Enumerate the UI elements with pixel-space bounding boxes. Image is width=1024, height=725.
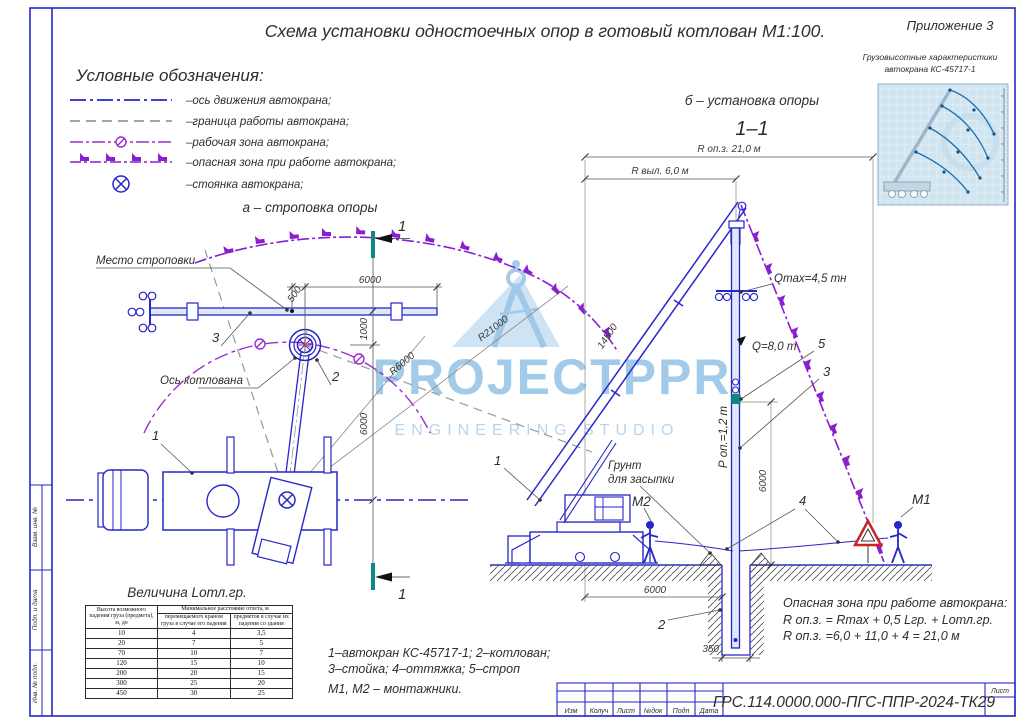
plan-callout-3: 3 <box>212 330 220 345</box>
cell: 25 <box>230 688 292 698</box>
no-entry-icon <box>255 339 265 349</box>
danger-flag-icon <box>158 153 167 161</box>
legend-item-boundary: –граница работы автокрана; <box>185 116 349 128</box>
guy-wires <box>655 538 888 551</box>
offset-table-container: Высота возможного падения груза (предмет… <box>85 605 293 699</box>
side-field-inv: Инв. № подл. <box>31 663 39 704</box>
danger-zone-note: Опасная зона при работе автокрана: R оп.… <box>783 596 1007 643</box>
table-row: 2075 <box>86 638 293 648</box>
table-row: 2002015 <box>86 668 293 678</box>
table-row: 3002520 <box>86 678 293 688</box>
section-callout-4: 4 <box>799 493 806 508</box>
cell: 4 <box>157 628 230 638</box>
section-mark-label: 1 <box>398 218 406 235</box>
outrigger <box>324 437 331 473</box>
danger-flag-icon <box>132 153 141 161</box>
legend-item-workzone: –рабочая зона автокрана; <box>185 137 329 149</box>
sling-point <box>290 309 294 313</box>
watermark-subtext: ENGINEERING STUDIO <box>395 422 680 439</box>
section-mark-bottom: 1 <box>373 563 410 603</box>
q-load-label: Q=8,0 т <box>752 341 797 353</box>
cell: 7 <box>157 638 230 648</box>
dim-r-vyl: R выл. 6,0 м <box>631 166 688 177</box>
section-arrow-icon <box>375 573 392 582</box>
danger-note-line3: R оп.з. =6,0 + 11,0 + 4 = 21,0 м <box>783 629 960 643</box>
sheet-label: Лист <box>990 688 1009 695</box>
position-notes: 1–автокран КС-45717-1; 2–котлован; 3–сто… <box>328 646 551 696</box>
table-row: 1043,5 <box>86 628 293 638</box>
offset-table-title: Величина Lотл.гр. <box>127 585 247 600</box>
danger-note-line1: Опасная зона при работе автокрана: <box>783 596 1007 610</box>
stamp-col-ndok: №док <box>644 707 663 715</box>
legend-item-dangerzone: –опасная зона при работе автокрана; <box>185 157 396 169</box>
stamp-col-koluch: Колуч <box>590 708 609 715</box>
section-callout-3: 3 <box>823 364 831 379</box>
watermark-text: PROJECTPPR <box>373 349 732 405</box>
chart-title-line1: Грузовысотные характеристики <box>863 52 998 62</box>
crane-parking-icon <box>113 176 129 192</box>
table-col1-header: Высота возможного падения груза (предмет… <box>86 606 158 629</box>
worker-m1-figure <box>890 521 907 563</box>
cell: 15 <box>230 668 292 678</box>
outrigger <box>227 529 234 565</box>
notes-line2: 3–стойка; 4–оттяжка; 5–строп <box>328 662 520 676</box>
legend-item-axis: –ось движения автокрана; <box>185 95 331 107</box>
plan-subtitle: а – строповка опоры <box>243 200 378 215</box>
side-field-vzam: Взам. инв. № <box>32 507 39 547</box>
side-field-podp: Подп. и дата <box>31 589 39 630</box>
pole-clamp <box>187 303 198 320</box>
cell: 450 <box>86 688 158 698</box>
cell: 5 <box>230 638 292 648</box>
legend-header: Условные обозначения: <box>75 66 264 85</box>
offset-distance-table: Высота возможного падения груза (предмет… <box>85 605 293 699</box>
cell: 70 <box>86 648 158 658</box>
sling-place-label: Место строповки <box>96 255 196 267</box>
dim-6000-h: 6000 <box>644 585 667 596</box>
page-title: Схема установки одностоечных опор в гото… <box>265 21 825 41</box>
section-view-label: 1–1 <box>735 118 768 140</box>
table-col2-header: перемещаемого краном груза в случае его … <box>157 613 230 628</box>
qmax-label: Qmax=4,5 тн <box>774 273 847 285</box>
table-row: 1201510 <box>86 658 293 668</box>
doc-number: ГРС.114.0000.000-ПГС-ППР-2024-ТК29 <box>713 694 995 711</box>
strop-attach <box>732 394 741 404</box>
cell: 25 <box>157 678 230 688</box>
soil-label-line2: для засыпки <box>608 474 675 486</box>
table-row: 4503025 <box>86 688 293 698</box>
danger-zone-line <box>741 205 884 562</box>
cell: 15 <box>157 658 230 668</box>
cell: 10 <box>230 658 292 668</box>
pole-clamp <box>391 303 402 320</box>
outrigger <box>227 437 234 473</box>
section-callout-2: 2 <box>657 617 666 632</box>
cell: 10 <box>86 628 158 638</box>
notes-line1: 1–автокран КС-45717-1; 2–котлован; <box>328 646 551 660</box>
table-col3-header: предметов в случае их падения со здания <box>230 613 292 628</box>
danger-note-line2: R оп.з. = Rmax + 0,5 Lгр. + Lотл.гр. <box>783 613 993 627</box>
dim-350: 350 <box>702 644 719 655</box>
cell: 7 <box>230 648 292 658</box>
load-height-chart: Грузовысотные характеристики автокрана К… <box>863 52 1008 205</box>
plan-dim-6000-side: 6000 <box>359 412 370 435</box>
cell: 3,5 <box>230 628 292 638</box>
legend: Условные обозначения: –ось движения авто… <box>70 66 396 192</box>
worker-m2-label: М2 <box>632 494 651 509</box>
cell: 120 <box>86 658 158 668</box>
notes-line3: М1, М2 – монтажники. <box>328 682 462 696</box>
worker-m1-label: М1 <box>912 492 931 507</box>
p-op-label: Р оп.=1,2 т <box>718 405 730 468</box>
section-mark-top: 1 <box>373 218 410 258</box>
outrigger <box>324 529 331 565</box>
stamp-col-list: Лист <box>616 708 635 715</box>
cell: 20 <box>157 668 230 678</box>
cell: 10 <box>157 648 230 658</box>
stamp-col-podp: Подп <box>673 707 690 715</box>
legend-item-parking: –стоянка автокрана; <box>185 179 304 191</box>
dim-r-opz: R оп.з. 21,0 м <box>697 144 760 155</box>
danger-zone-arc <box>195 237 618 352</box>
danger-flag-icon <box>106 153 115 161</box>
stamp-col-izm: Изм <box>565 708 578 715</box>
table-span-header: Минимальное расстояние отлета, м <box>157 606 292 614</box>
table-row: 70107 <box>86 648 293 658</box>
section-callout-5: 5 <box>818 336 826 351</box>
cell: 30 <box>157 688 230 698</box>
plan-callout-2: 2 <box>331 369 340 384</box>
section-callout-1: 1 <box>494 453 501 468</box>
no-entry-icon <box>116 137 126 147</box>
no-entry-icon <box>354 354 364 364</box>
danger-flag-icon <box>80 153 89 161</box>
chart-title-line2: автокрана КС-45717-1 <box>884 64 975 74</box>
crane-plan <box>98 437 337 565</box>
appendix-label: Приложение 3 <box>907 18 995 33</box>
warning-triangle-icon <box>855 521 881 563</box>
cell: 20 <box>230 678 292 688</box>
section-mark-label: 1 <box>398 586 406 603</box>
pole-plan <box>128 292 437 332</box>
dim-6000-v: 6000 <box>758 469 769 492</box>
pit-axis-label: Ось котлована <box>160 375 243 387</box>
soil-label-line1: Грунт <box>608 460 642 472</box>
side-stamp: Взам. инв. № Подп. и дата Инв. № подл. <box>31 507 39 703</box>
cell: 300 <box>86 678 158 688</box>
crane-cab <box>595 497 623 520</box>
plan-callout-1: 1 <box>152 428 159 443</box>
section-subtitle: б – установка опоры <box>685 93 819 108</box>
section-arrow-icon <box>375 234 392 243</box>
plan-dim-6000-top: 6000 <box>359 275 382 286</box>
cell: 200 <box>86 668 158 678</box>
drawing-sheet: Взам. инв. № Подп. и дата Инв. № подл. И… <box>0 0 1024 725</box>
cell: 20 <box>86 638 158 648</box>
plan-dim-1000: 1000 <box>359 317 370 340</box>
